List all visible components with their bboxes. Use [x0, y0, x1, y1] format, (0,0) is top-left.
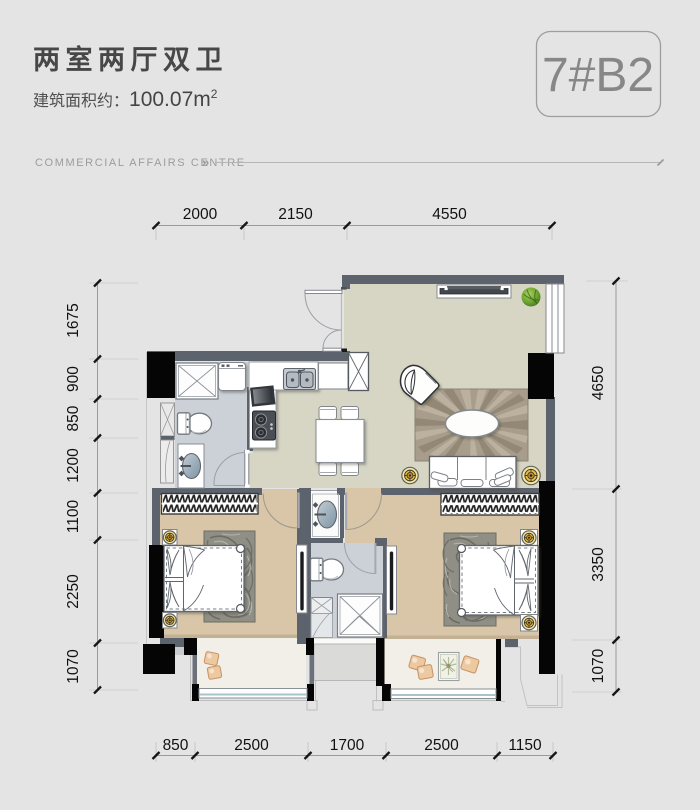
svg-text:7#B2: 7#B2: [542, 49, 654, 102]
svg-text:2000: 2000: [183, 206, 218, 223]
svg-text:850: 850: [65, 405, 82, 431]
svg-text:1150: 1150: [508, 737, 542, 754]
svg-text:2250: 2250: [65, 574, 82, 609]
svg-text:3350: 3350: [590, 547, 607, 582]
svg-text:2500: 2500: [234, 737, 269, 754]
svg-text:850: 850: [163, 737, 189, 754]
svg-text:1700: 1700: [330, 737, 365, 754]
svg-text:4550: 4550: [432, 206, 467, 223]
svg-text:COMMERCIAL AFFAIRS CENTRE: COMMERCIAL AFFAIRS CENTRE: [35, 157, 246, 169]
svg-text:1675: 1675: [65, 303, 82, 337]
svg-text:4650: 4650: [590, 365, 607, 400]
svg-text:2500: 2500: [424, 737, 459, 754]
svg-text:1100: 1100: [65, 499, 82, 533]
svg-text:两室两厅双卫: 两室两厅双卫: [33, 44, 228, 75]
svg-text:1070: 1070: [65, 649, 82, 684]
svg-text:900: 900: [65, 366, 82, 392]
svg-text:1070: 1070: [590, 648, 607, 683]
svg-text:2150: 2150: [278, 206, 313, 223]
svg-text:»: »: [202, 155, 209, 170]
svg-text:1200: 1200: [65, 448, 82, 483]
